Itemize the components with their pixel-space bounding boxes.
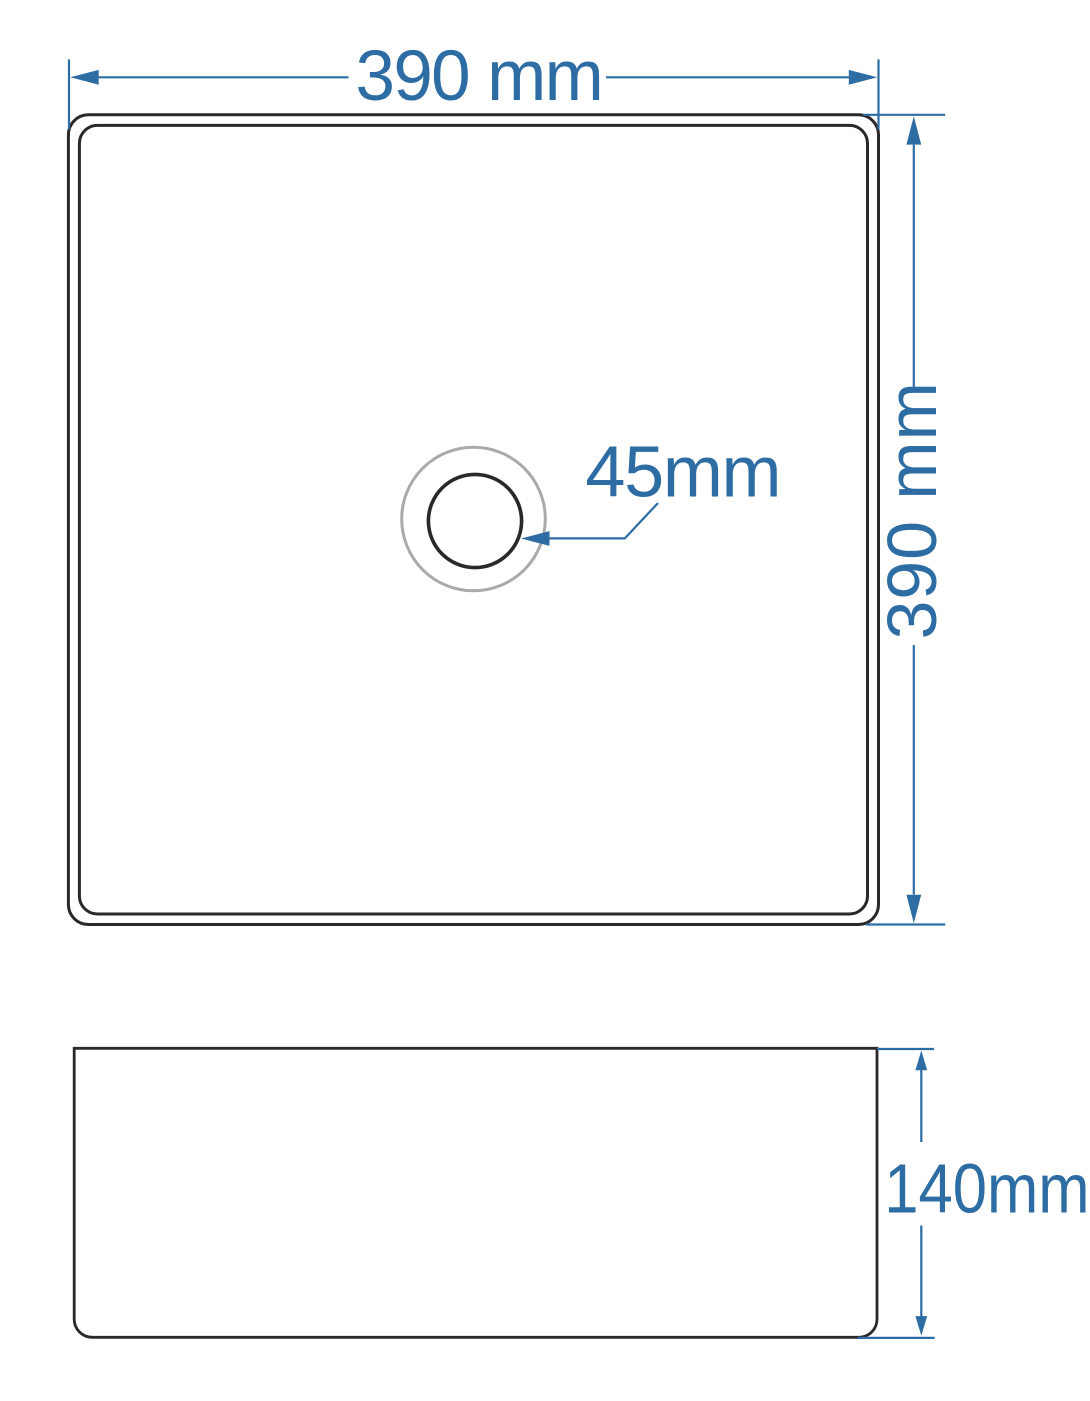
- svg-text:390 mm: 390 mm: [873, 381, 951, 639]
- svg-text:45mm: 45mm: [585, 433, 780, 513]
- svg-text:390 mm: 390 mm: [356, 37, 603, 116]
- svg-text:140mm: 140mm: [884, 1149, 1089, 1228]
